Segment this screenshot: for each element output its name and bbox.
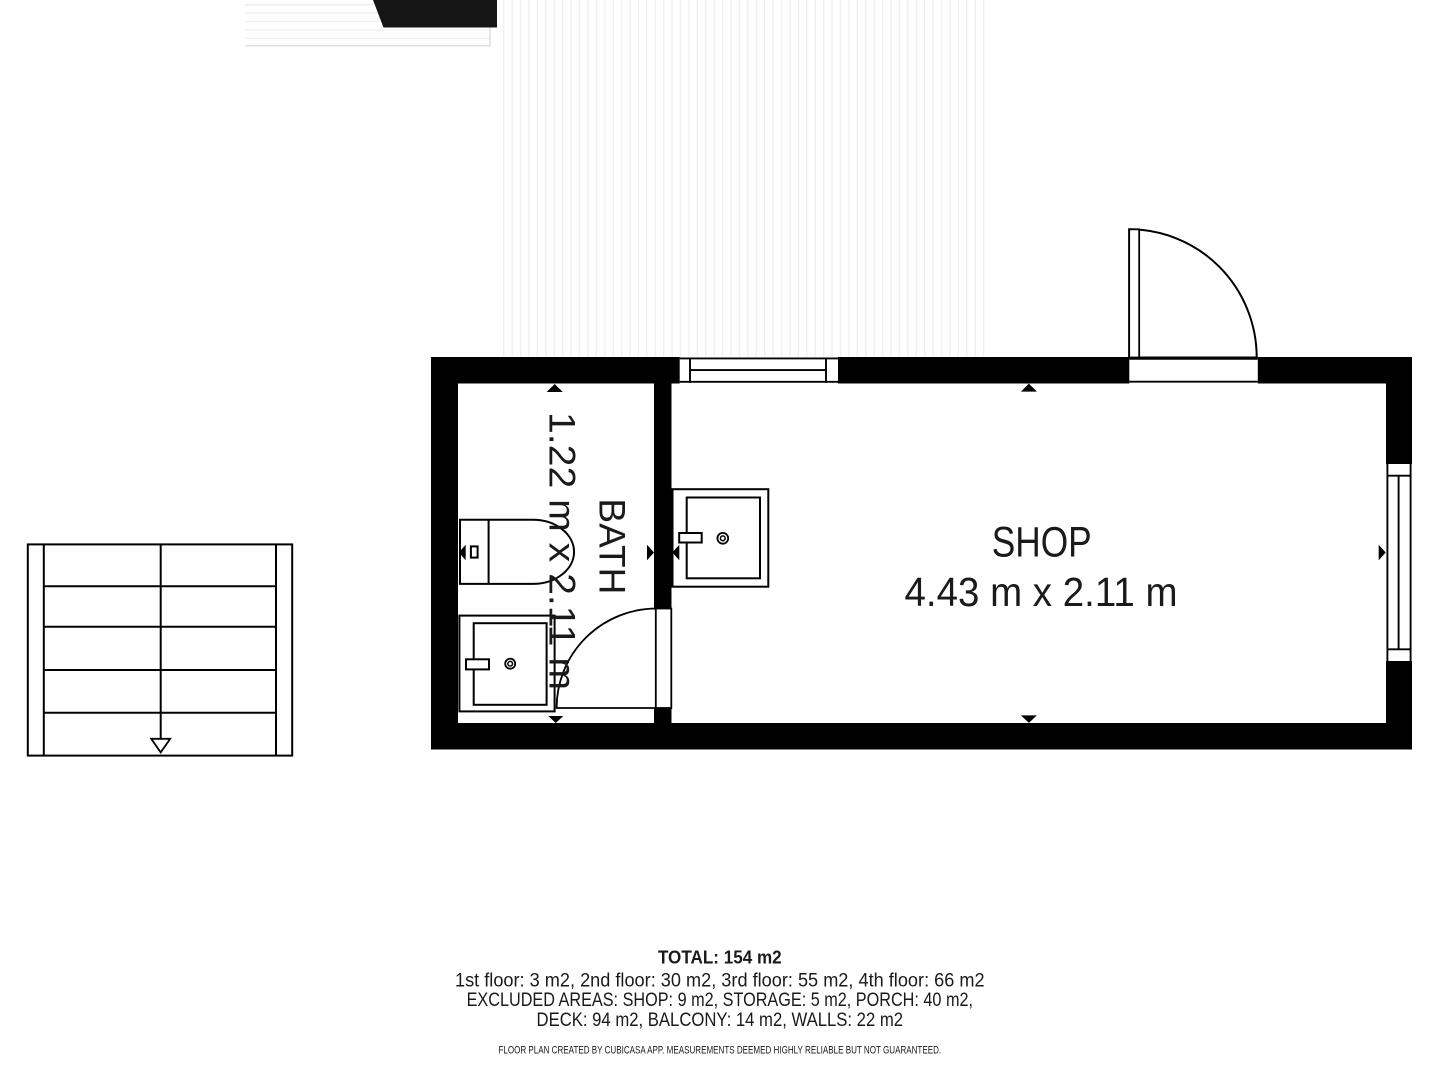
svg-text:1st floor: 3 m2, 2nd floor: 30: 1st floor: 3 m2, 2nd floor: 30 m2, 3rd f…: [455, 970, 985, 992]
svg-text:SHOP: SHOP: [992, 518, 1092, 566]
svg-text:1.22 m x 2.11 m: 1.22 m x 2.11 m: [542, 412, 583, 690]
svg-text:EXCLUDED AREAS: SHOP: 9 m2, ST: EXCLUDED AREAS: SHOP: 9 m2, STORAGE: 5 m…: [467, 989, 973, 1011]
svg-text:DECK: 94 m2, BALCONY: 14 m2, W: DECK: 94 m2, BALCONY: 14 m2, WALLS: 22 m…: [537, 1009, 904, 1031]
svg-text:BATH: BATH: [591, 498, 632, 594]
svg-text:FLOOR PLAN CREATED BY CUBICASA: FLOOR PLAN CREATED BY CUBICASA APP. MEAS…: [498, 1044, 941, 1056]
svg-text:TOTAL: 154 m2: TOTAL: 154 m2: [658, 946, 782, 967]
svg-text:4.43 m x 2.11 m: 4.43 m x 2.11 m: [905, 569, 1178, 615]
